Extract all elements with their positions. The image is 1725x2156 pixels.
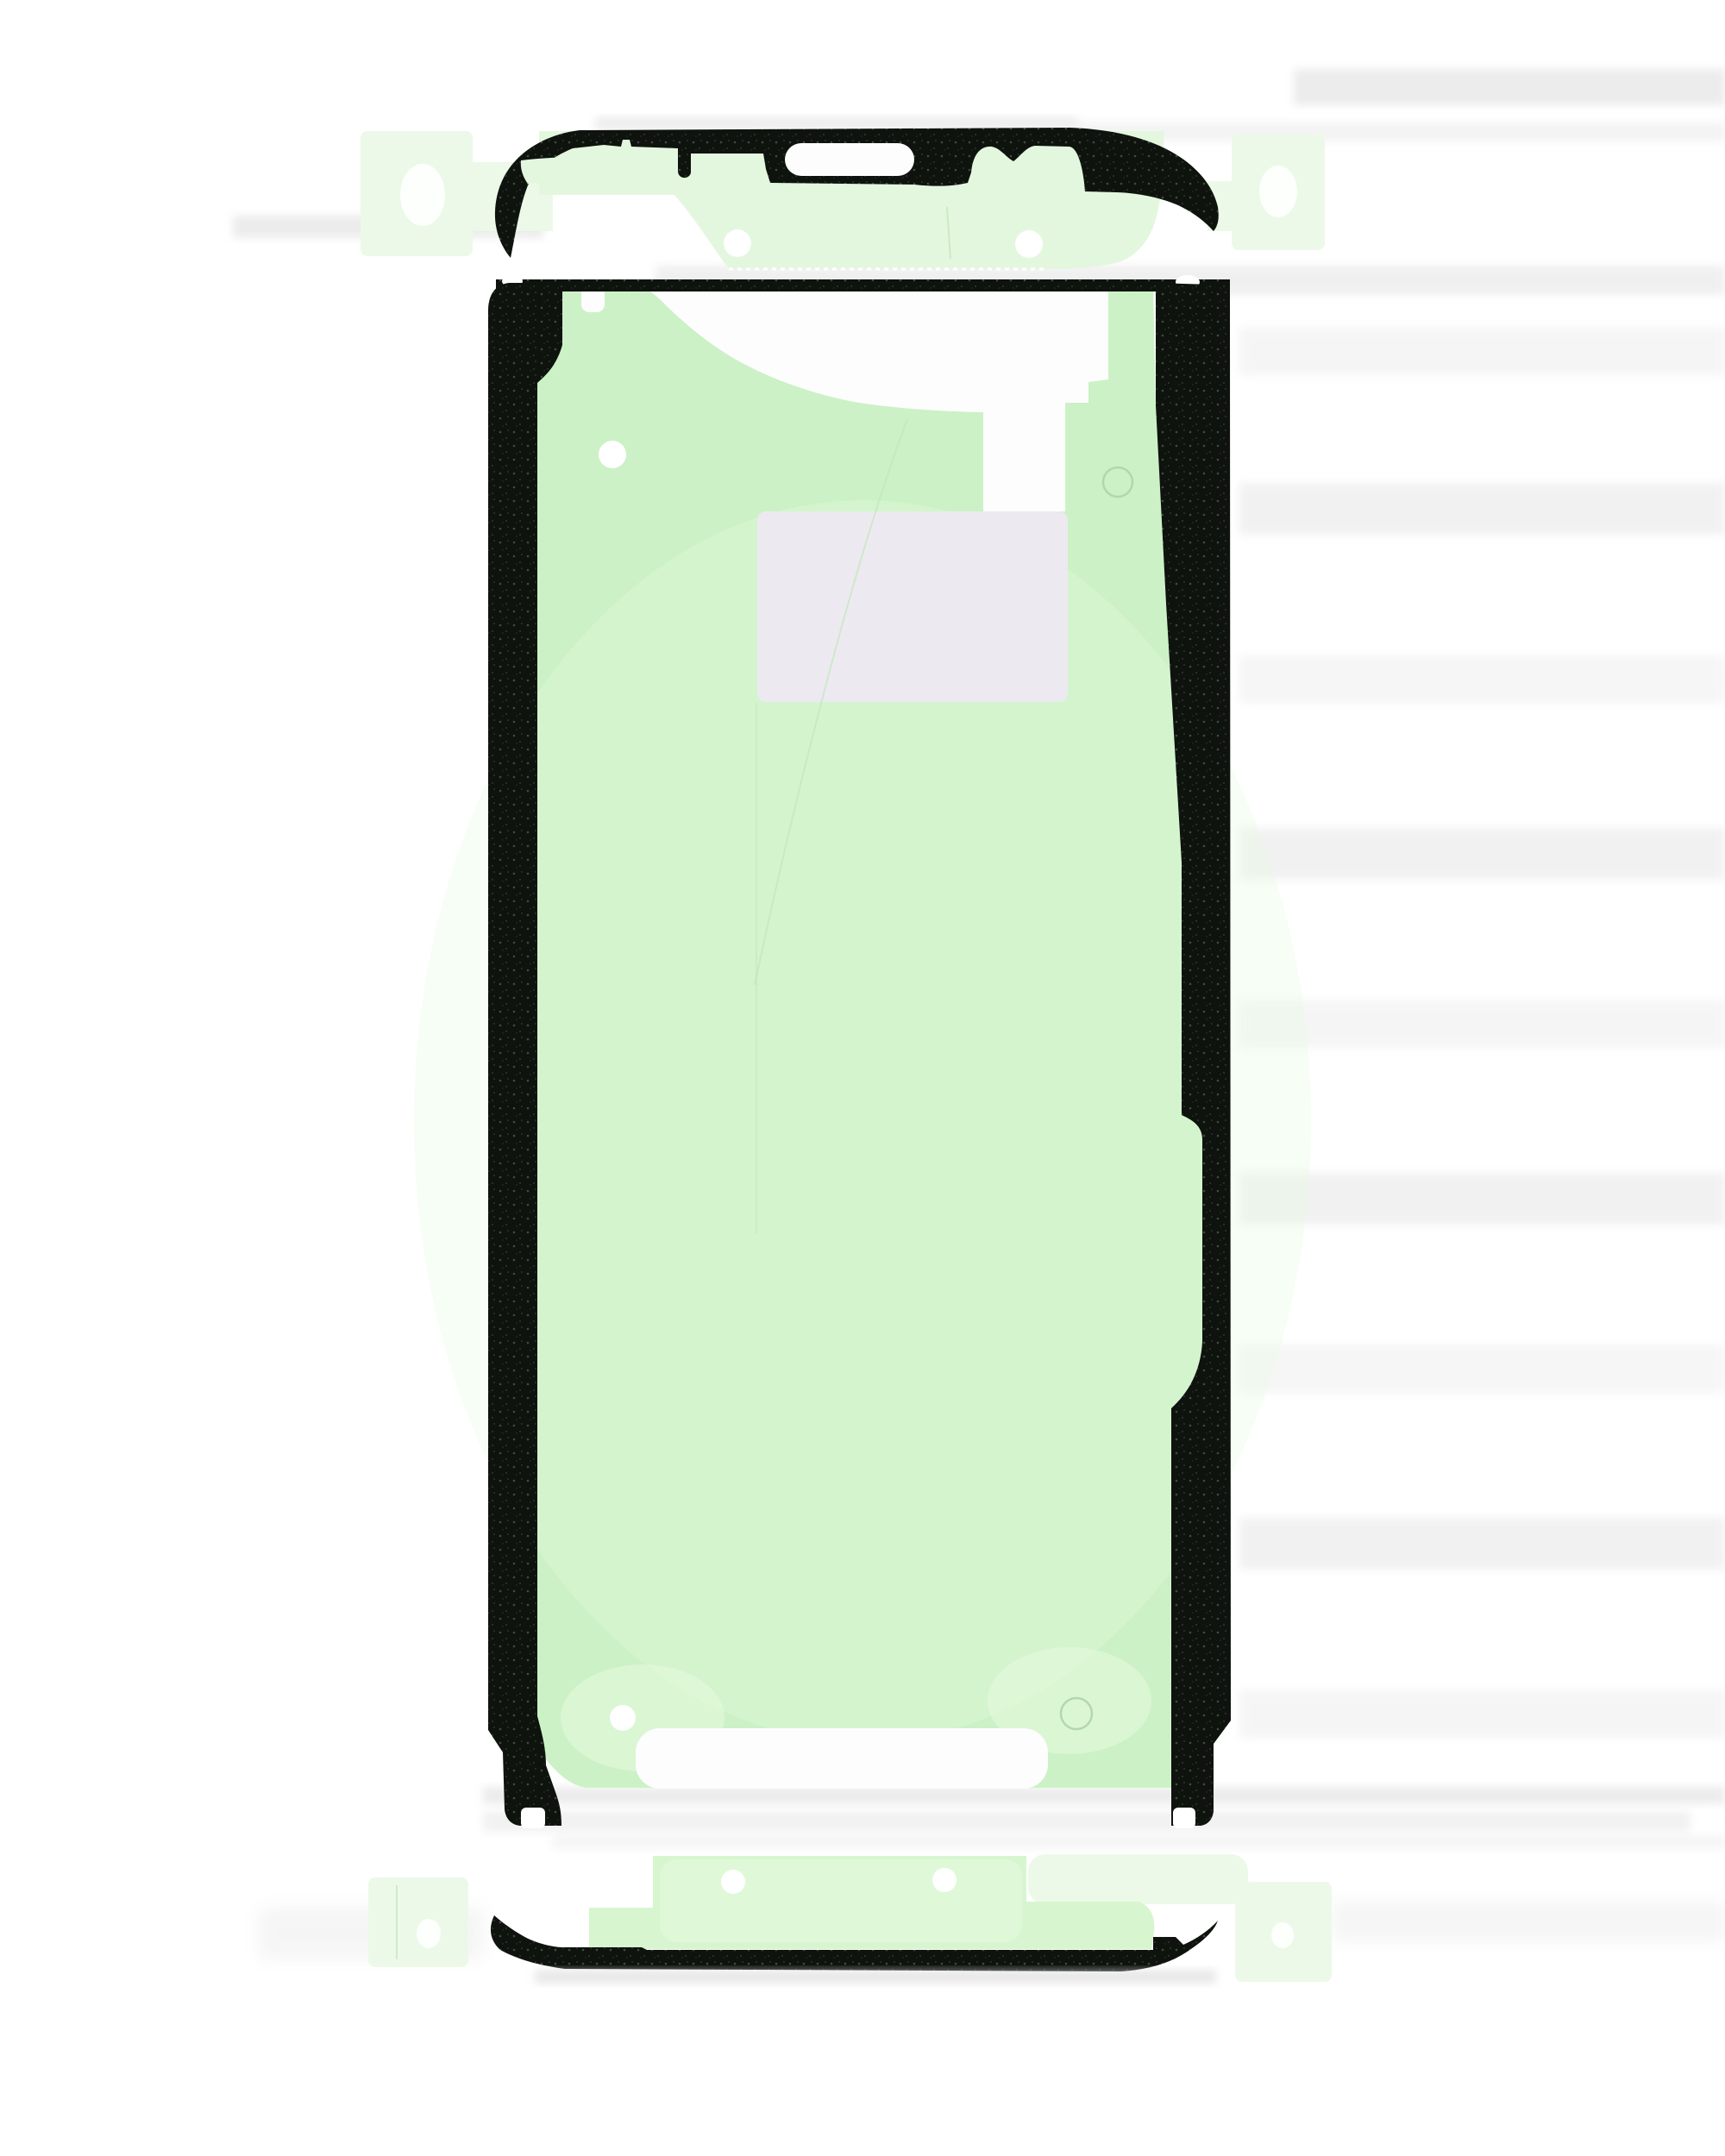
left-liner-tab	[368, 1877, 468, 1967]
bottom-left-notch	[521, 1808, 545, 1828]
liner-pale-block	[1028, 1854, 1248, 1904]
inner-liner-window	[757, 511, 1068, 702]
alignment-hole	[610, 1705, 636, 1731]
strip-shadow	[535, 1970, 1216, 1984]
shadow-band	[483, 1811, 1690, 1832]
left-tab-highlight	[400, 164, 445, 226]
right-tab-highlight	[1259, 166, 1297, 217]
shadow-band	[1239, 828, 1725, 880]
shadow-band	[1239, 328, 1725, 375]
shadow-band	[1333, 1902, 1725, 1941]
shadow-band	[1239, 655, 1725, 703]
earpiece-speaker-cutout	[785, 143, 914, 176]
product-photo-canvas	[0, 0, 1725, 2156]
adhesive-kit-photo	[0, 0, 1725, 2156]
shadow-band	[1239, 483, 1725, 535]
shadow-band	[1294, 69, 1725, 105]
left-tab-highlight	[417, 1919, 441, 1948]
shadow-band	[1239, 1173, 1725, 1225]
shadow-band	[1239, 1345, 1725, 1393]
shadow-band	[1078, 122, 1725, 141]
alignment-hole	[1015, 230, 1043, 258]
shadow-band	[1239, 1518, 1725, 1570]
alignment-hole	[932, 1868, 957, 1892]
shadow-band	[483, 1787, 1725, 1804]
top-strip-shadow	[595, 117, 1078, 129]
shadow-band	[552, 1835, 1725, 1849]
bottom-right-notch	[1173, 1808, 1195, 1828]
right-tab-highlight	[1271, 1922, 1294, 1948]
frame-top-bar-fill	[496, 279, 1230, 291]
strip-sheen	[660, 1859, 1022, 1942]
shadow-band	[1239, 1690, 1725, 1738]
main-display-adhesive-frame	[414, 275, 1311, 1828]
alignment-hole	[721, 1870, 745, 1894]
alignment-hole	[724, 229, 751, 257]
shadow-band	[1239, 1000, 1725, 1048]
bottom-liner-band	[636, 1728, 1048, 1789]
alignment-hole	[599, 441, 626, 468]
